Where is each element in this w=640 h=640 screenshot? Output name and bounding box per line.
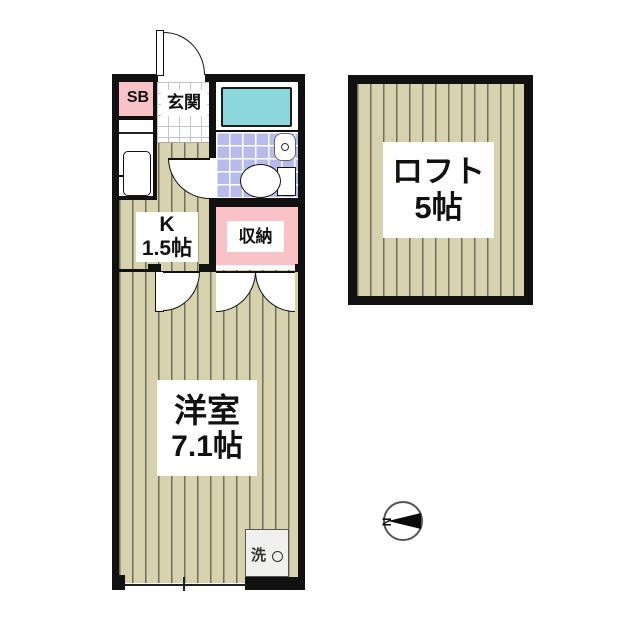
hand-sink-drain <box>281 143 289 151</box>
entrance-label-text: 玄関 <box>167 93 201 113</box>
kitchen-sink <box>123 151 151 196</box>
bottom-wall-right <box>245 577 305 590</box>
bath-bottom-wall <box>209 198 305 207</box>
left-wall <box>112 74 119 590</box>
compass: N <box>383 501 423 541</box>
western-room-label: 洋室 7.1帖 <box>157 380 257 476</box>
kitchen-room-wall-line <box>119 269 149 272</box>
counter-divider-line <box>119 132 157 134</box>
loft-label: ロフト 5帖 <box>383 142 494 238</box>
entrance-label: 玄関 <box>161 90 207 116</box>
shoe-box-label: SB <box>119 89 157 107</box>
right-wall <box>298 74 305 590</box>
counter-bottom-wall <box>119 196 157 200</box>
kitchen-label-size: 1.5帖 <box>142 237 192 261</box>
window-line <box>125 584 247 586</box>
loft-label-name: ロフト <box>392 154 485 190</box>
western-room-label-size: 7.1帖 <box>171 430 243 465</box>
window-center-tick <box>183 577 185 591</box>
door-jamb-left <box>148 264 161 272</box>
kitchen-bath-wall-upper <box>209 74 216 158</box>
bathtub <box>221 87 292 127</box>
washer-box: 洗 <box>245 529 289 577</box>
washer-drum-icon <box>272 551 283 562</box>
toilet-bowl <box>240 164 281 198</box>
loft: ロフト 5帖 <box>348 75 533 305</box>
bottom-wall-left-corner <box>112 575 125 590</box>
entrance-door-swing <box>164 32 205 75</box>
kitchen-label: K 1.5帖 <box>136 212 198 262</box>
kitchen-bath-wall-lower <box>209 200 216 272</box>
floorplan: SB 収納 洗 玄 <box>0 0 640 640</box>
storage-label: 収納 <box>227 221 284 252</box>
door-jamb-center <box>199 264 216 272</box>
loft-label-size: 5帖 <box>414 190 462 226</box>
compass-north-label: N <box>379 518 393 527</box>
western-room-label-name: 洋室 <box>174 392 240 430</box>
washer-label: 洗 <box>251 544 266 565</box>
entrance-door-leaf <box>156 30 164 76</box>
storage-label-text: 収納 <box>239 227 273 247</box>
kitchen-label-name: K <box>159 213 174 237</box>
counter-right-wall <box>153 82 157 198</box>
top-wall-right <box>205 74 305 82</box>
